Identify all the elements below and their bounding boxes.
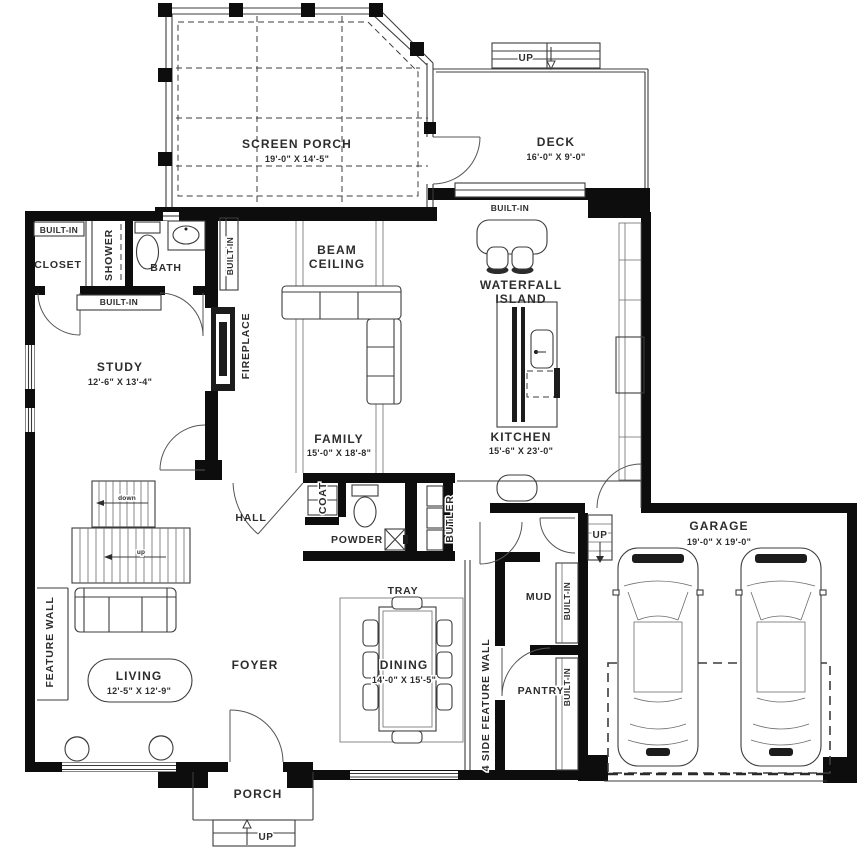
sectional-sofa	[282, 286, 401, 404]
label-shower: SHOWER	[103, 229, 115, 281]
dims-study: 12'-6" X 13'-4"	[88, 377, 152, 387]
swivel-chair	[65, 737, 89, 761]
label-coat: COAT	[317, 482, 329, 514]
label-kitchen: KITCHEN	[490, 430, 551, 444]
porch-up-arrow	[243, 820, 251, 828]
floor-plan: UP	[0, 0, 865, 854]
living-sofa	[75, 588, 176, 632]
label-mud: MUD	[526, 591, 552, 603]
island-bar-table	[477, 220, 547, 274]
door-arc-hall	[233, 483, 303, 534]
label-tray: TRAY	[388, 585, 419, 597]
garage-zone: UP	[588, 515, 830, 781]
label-dining: DINING	[380, 658, 429, 672]
label-garage: GARAGE	[689, 519, 748, 533]
living-room	[37, 588, 192, 761]
kitchen-counter-right	[616, 223, 644, 480]
window	[26, 345, 35, 389]
car-right	[736, 548, 826, 766]
door-arc-porch-deck	[433, 137, 480, 184]
powder-sink	[385, 529, 408, 550]
label-waterfall-island-1: WATERFALL	[480, 278, 562, 292]
dims-living: 12'-5" X 12'-9"	[107, 686, 171, 696]
deck-stairs-up-label: UP	[519, 53, 534, 64]
deck-structure: UP	[433, 43, 648, 188]
kitchen-zone	[457, 220, 644, 501]
car-left	[613, 548, 703, 766]
dims-deck: 16'-0" X 9'-0"	[526, 152, 585, 162]
label-four-side-feature-wall: 4 SIDE FEATURE WALL	[480, 639, 492, 772]
screen-porch-structure	[158, 3, 436, 207]
label-built-in-pantry: BUILT-IN	[562, 668, 572, 706]
label-beam-ceiling-1: BEAM	[317, 243, 357, 257]
stairs-up-label: up	[137, 549, 145, 556]
label-waterfall-island-2: ISLAND	[495, 292, 546, 306]
label-built-in-bath: BUILT-IN	[225, 237, 235, 275]
dims-screen-porch: 19'-0" X 14'-5"	[265, 154, 329, 164]
label-butler: BUTLER	[444, 495, 456, 542]
label-foyer: FOYER	[232, 658, 279, 672]
refrigerator	[616, 337, 644, 393]
door-arc-front-entry	[230, 710, 283, 762]
garage-stairs-up-label: UP	[593, 530, 608, 541]
label-built-in-deck: BUILT-IN	[491, 203, 529, 213]
swivel-chair	[149, 736, 173, 760]
hall-stairs: down up	[72, 481, 190, 583]
door-arc-closet	[38, 293, 80, 335]
bar-stool	[512, 247, 533, 269]
dims-dining: 14'-0" X 15'-5"	[372, 675, 436, 685]
label-feature-wall: FEATURE WALL	[44, 596, 56, 687]
porch-up-label: UP	[259, 832, 274, 843]
garage-stairs: UP	[588, 515, 612, 563]
butler-shelves	[427, 486, 443, 550]
label-closet: CLOSET	[34, 259, 81, 271]
powder-toilet	[352, 485, 378, 527]
feature-wall-band	[465, 560, 470, 770]
dims-garage: 19'-0" X 19'-0"	[687, 537, 751, 547]
window	[62, 763, 176, 772]
kitchen-sink-nook	[497, 475, 537, 501]
window	[26, 408, 35, 432]
window	[350, 771, 458, 779]
label-screen-porch: SCREEN PORCH	[242, 137, 352, 151]
label-beam-ceiling-2: CEILING	[309, 257, 365, 271]
bar-stool	[487, 247, 508, 269]
label-built-in-hall: BUILT-IN	[100, 297, 138, 307]
label-bath: BATH	[150, 262, 182, 274]
label-living: LIVING	[116, 669, 163, 683]
label-built-in-closet: BUILT-IN	[40, 225, 78, 235]
dims-family: 15'-0" X 18'-8"	[307, 448, 371, 458]
label-porch: PORCH	[234, 787, 283, 801]
label-powder: POWDER	[331, 534, 383, 546]
label-deck: DECK	[537, 135, 575, 149]
door-arc-bath	[160, 293, 203, 336]
label-hall: HALL	[235, 512, 266, 524]
stairs-down-label: down	[118, 495, 136, 502]
label-built-in-mud: BUILT-IN	[562, 582, 572, 620]
fireplace	[211, 307, 235, 391]
door-arc-garage-entry	[540, 518, 575, 553]
bath-sink	[168, 221, 205, 250]
label-study: STUDY	[97, 360, 143, 374]
label-pantry: PANTRY	[518, 685, 565, 697]
dims-kitchen: 15'-6" X 23'-0"	[489, 446, 553, 456]
kitchen-island	[497, 302, 560, 427]
label-fireplace: FIREPLACE	[240, 313, 252, 380]
deck-stairs: UP	[492, 43, 600, 69]
label-family: FAMILY	[314, 432, 364, 446]
floor-plan-svg: UP	[0, 0, 865, 854]
